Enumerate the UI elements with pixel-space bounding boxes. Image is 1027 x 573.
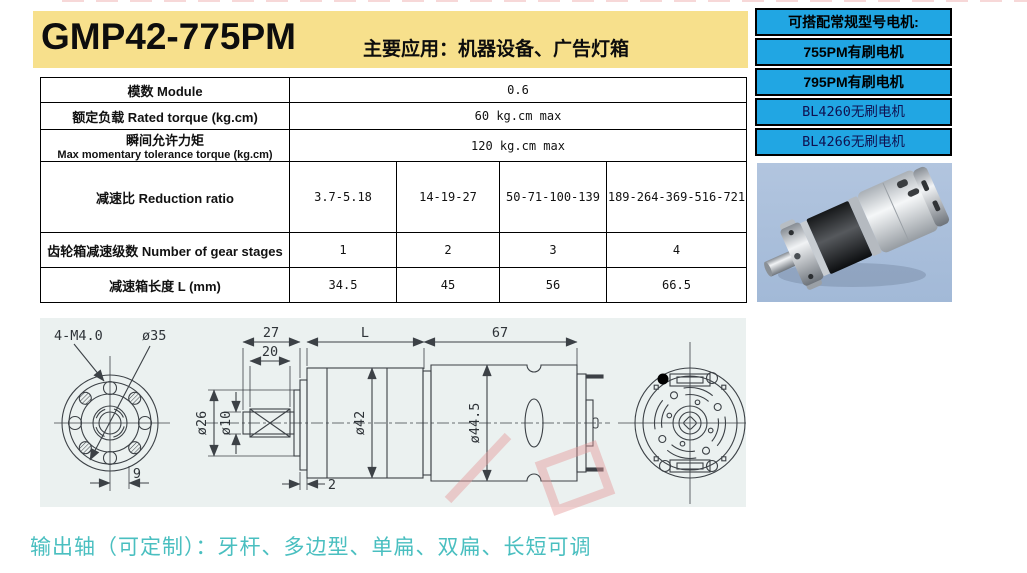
- table-row: 模数 Module 0.6: [41, 78, 747, 103]
- dim-label-dia42: ø42: [352, 411, 368, 435]
- ratio-stage4: 189-264-369-516-721: [607, 162, 747, 233]
- dim-label-dia10: ø10: [218, 411, 234, 435]
- sidebar-item-bl4266: BL4266无刷电机: [755, 128, 952, 156]
- technical-drawing: 4-M4.0 ø35 9: [40, 318, 746, 523]
- ratio-stage1: 3.7-5.18: [290, 162, 397, 233]
- drawing-background: [40, 318, 746, 507]
- sidebar-item-bl4260: BL4260无刷电机: [755, 98, 952, 126]
- length-1: 34.5: [290, 268, 397, 303]
- row-label-reduction-ratio: 减速比 Reduction ratio: [41, 162, 290, 233]
- spec-table: 模数 Module 0.6 额定负载 Rated torque (kg.cm) …: [40, 77, 747, 303]
- length-2: 45: [397, 268, 500, 303]
- table-row: 齿轮箱减速级数 Number of gear stages 1 2 3 4: [41, 233, 747, 268]
- rear-view-index-dot: [658, 374, 669, 385]
- product-photo: [757, 163, 952, 302]
- table-row: 瞬间允许力矩 Max momentary tolerance torque (k…: [41, 130, 747, 162]
- main-applications-label: 主要应用：机器设备、广告灯箱: [363, 34, 629, 61]
- dim-label-2: 2: [328, 477, 336, 493]
- dim-label-offset9: 9: [133, 466, 141, 482]
- table-row: 减速比 Reduction ratio 3.7-5.18 14-19-27 50…: [41, 162, 747, 233]
- dim-label-bolts: 4-M4.0: [54, 328, 103, 344]
- length-3: 56: [500, 268, 607, 303]
- compatible-motor-list: 可搭配常规型号电机: 755PM有刷电机 795PM有刷电机 BL4260无刷电…: [755, 8, 952, 158]
- page-title: GMP42-775PM: [41, 16, 296, 58]
- stages-4: 4: [607, 233, 747, 268]
- sidebar-item-795pm: 795PM有刷电机: [755, 68, 952, 96]
- table-row: 减速箱长度 L (mm) 34.5 45 56 66.5: [41, 268, 747, 303]
- technical-drawing-svg: 4-M4.0 ø35 9: [40, 318, 746, 523]
- row-label-momentary-torque: 瞬间允许力矩 Max momentary tolerance torque (k…: [41, 130, 290, 162]
- dim-label-dia26: ø26: [194, 411, 210, 435]
- dim-label-20: 20: [262, 344, 278, 360]
- table-row: 额定负载 Rated torque (kg.cm) 60 kg.cm max: [41, 103, 747, 130]
- sidebar-item-755pm: 755PM有刷电机: [755, 38, 952, 66]
- dim-label-flange-dia: ø35: [142, 328, 166, 344]
- dim-label-dia44: ø44.5: [467, 403, 483, 444]
- row-value-module: 0.6: [290, 78, 747, 103]
- dim-label-L: L: [361, 325, 369, 341]
- stages-3: 3: [500, 233, 607, 268]
- stages-1: 1: [290, 233, 397, 268]
- row-label-module: 模数 Module: [41, 78, 290, 103]
- output-shaft-note: 输出轴（可定制）：牙杆、多边型、单扁、双扁、长短可调: [30, 531, 592, 561]
- row-label-momentary-torque-en: Max momentary tolerance torque (kg.cm): [41, 149, 289, 161]
- header-band: GMP42-775PM 主要应用：机器设备、广告灯箱: [33, 11, 748, 68]
- row-value-rated-torque: 60 kg.cm max: [290, 103, 747, 130]
- watermark-top-dashes: [62, 0, 1027, 2]
- ratio-stage3: 50-71-100-139: [500, 162, 607, 233]
- row-label-gearbox-length: 减速箱长度 L (mm): [41, 268, 290, 303]
- compatible-motor-list-title: 可搭配常规型号电机:: [755, 8, 952, 36]
- product-photo-svg: [757, 163, 952, 302]
- row-label-rated-torque: 额定负载 Rated torque (kg.cm): [41, 103, 290, 130]
- dim-label-27: 27: [263, 325, 279, 341]
- dim-label-67: 67: [492, 325, 508, 341]
- row-label-gear-stages: 齿轮箱减速级数 Number of gear stages: [41, 233, 290, 268]
- length-4: 66.5: [607, 268, 747, 303]
- stages-2: 2: [397, 233, 500, 268]
- row-label-momentary-torque-cn: 瞬间允许力矩: [41, 130, 289, 149]
- row-value-momentary-torque: 120 kg.cm max: [290, 130, 747, 162]
- ratio-stage2: 14-19-27: [397, 162, 500, 233]
